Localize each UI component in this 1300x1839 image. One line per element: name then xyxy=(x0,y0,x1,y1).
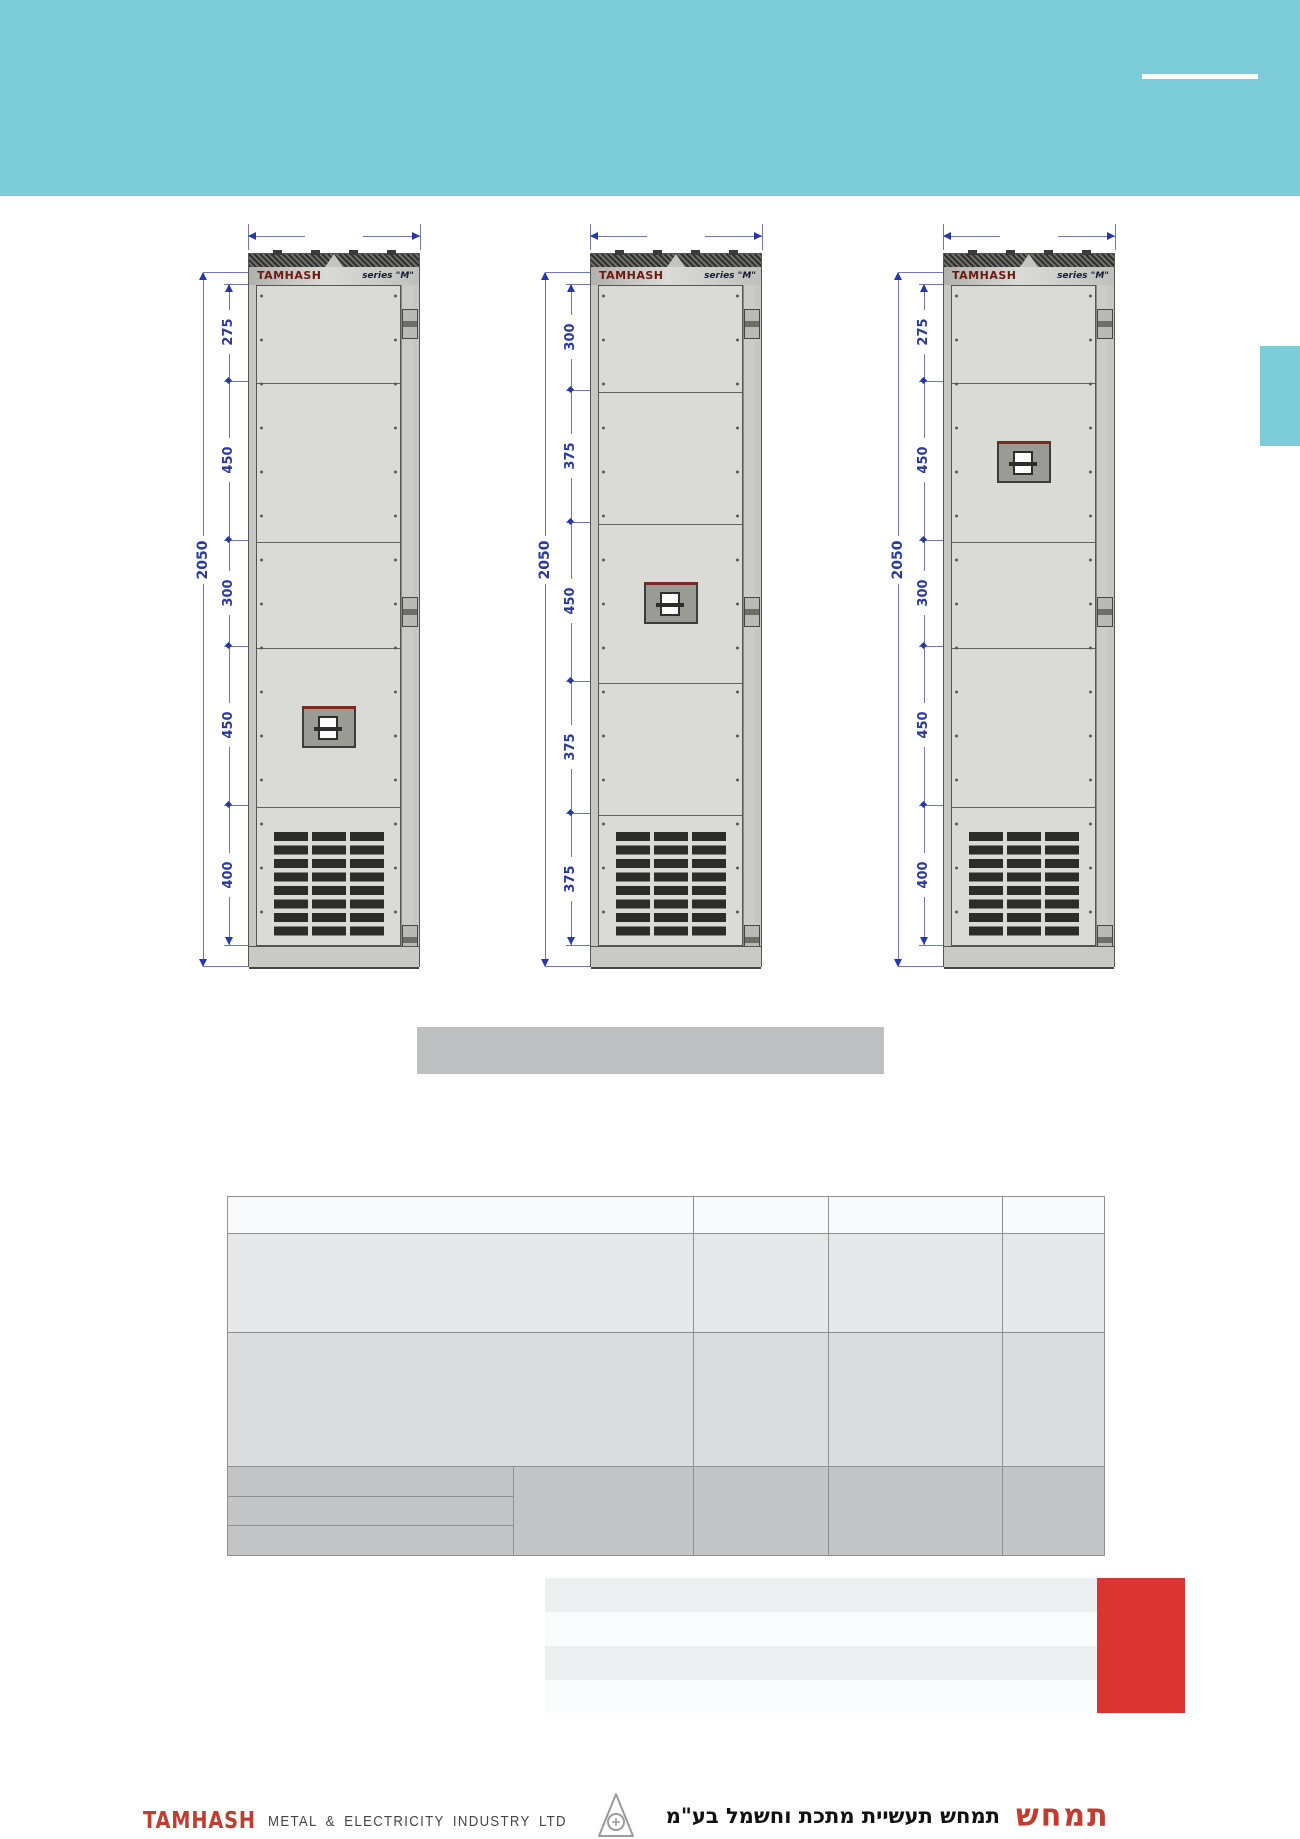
lifting-lug xyxy=(691,250,700,255)
dim-arrow xyxy=(943,232,951,240)
lifting-lug xyxy=(615,250,624,255)
stripe-row xyxy=(545,1646,1097,1680)
dim-arrow xyxy=(590,232,598,240)
dim-arrow xyxy=(567,284,575,292)
cabinet-body xyxy=(591,285,761,946)
dim-overall-line xyxy=(545,272,546,967)
catalog-page: 2050 275 450 300 450 400 TAMHASH series … xyxy=(0,0,1300,1839)
red-accent-block xyxy=(1097,1578,1185,1713)
dim-tick xyxy=(203,272,248,273)
panel-seam xyxy=(257,807,400,808)
header-band xyxy=(0,0,1300,196)
panel-seam xyxy=(952,648,1095,649)
dim-ext-line xyxy=(762,224,763,250)
dim-arrow xyxy=(225,536,232,543)
dim-overall-label: 2050 xyxy=(890,536,906,584)
panel-seam xyxy=(952,542,1095,543)
cabinet-vent-grille xyxy=(616,832,726,940)
table-row xyxy=(227,1233,1105,1332)
dim-arrow xyxy=(412,232,420,240)
page-edge-tab xyxy=(1260,346,1300,446)
company-name-hebrew: תמחש תעשיית מתכת וחשמל בע"מ xyxy=(650,1804,1000,1828)
lifting-lug xyxy=(1044,250,1053,255)
table-subline xyxy=(227,1525,513,1526)
dim-section-label: 400 xyxy=(221,853,237,897)
roof-peak xyxy=(667,254,685,267)
cabinet-vent-grille xyxy=(274,832,384,940)
table-line xyxy=(227,1466,1105,1467)
cabinet-body xyxy=(944,285,1114,946)
roof-peak xyxy=(1020,254,1038,267)
door-hinge xyxy=(744,309,760,339)
dim-section-label: 450 xyxy=(916,703,932,747)
cabinet-3: TAMHASH series "M" xyxy=(943,253,1115,967)
dim-arrow xyxy=(248,232,256,240)
stripe-row xyxy=(545,1680,1097,1713)
dim-ext-line xyxy=(1115,224,1116,250)
dim-arrow xyxy=(567,386,574,393)
dim-arrow xyxy=(541,272,549,280)
screw-column xyxy=(955,294,958,937)
cabinet-name-band: TAMHASH series "M" xyxy=(249,267,419,286)
dim-section-label: 400 xyxy=(916,853,932,897)
cabinet-door xyxy=(951,285,1096,946)
cabinet-vent-grille xyxy=(969,832,1079,940)
table-row xyxy=(227,1332,1105,1466)
dim-overall-label: 2050 xyxy=(195,536,211,584)
cabinet-2: TAMHASH series "M" xyxy=(590,253,762,967)
dim-section-label: 300 xyxy=(916,571,932,615)
handle-slot xyxy=(1013,451,1033,475)
cabinet-series-label: series "M" xyxy=(362,271,414,281)
table-line xyxy=(828,1196,829,1556)
cabinet-body xyxy=(249,285,419,946)
door-hinge xyxy=(402,309,418,339)
panel-seam xyxy=(952,383,1095,384)
dim-arrow xyxy=(920,284,928,292)
screw-column xyxy=(260,294,263,937)
screw-column xyxy=(394,294,397,937)
lifting-lug xyxy=(653,250,662,255)
cabinet-door xyxy=(598,285,743,946)
lifting-lug xyxy=(273,250,282,255)
dim-section-label: 450 xyxy=(563,579,579,623)
lifting-lug xyxy=(387,250,396,255)
table-line xyxy=(1104,1196,1105,1556)
cabinet-brand-label: TAMHASH xyxy=(952,269,1016,282)
header-accent-line xyxy=(1142,74,1258,79)
table-line xyxy=(693,1196,694,1556)
dim-arrow xyxy=(567,809,574,816)
dim-overall-line xyxy=(203,272,204,967)
dim-arrow xyxy=(1107,232,1115,240)
handle-slot xyxy=(660,592,680,616)
table-subline xyxy=(227,1496,513,1497)
screw-column xyxy=(736,294,739,937)
dim-width-line xyxy=(248,236,305,237)
table-header-row xyxy=(227,1196,1105,1233)
dim-tick xyxy=(545,272,590,273)
panel-seam xyxy=(599,815,742,816)
table-line xyxy=(227,1196,228,1556)
dim-section-label: 375 xyxy=(563,857,579,901)
panel-seam xyxy=(257,542,400,543)
dim-ext-line xyxy=(420,224,421,250)
door-hinge xyxy=(402,597,418,627)
dim-arrow xyxy=(894,272,902,280)
cabinet-series-label: series "M" xyxy=(1057,271,1109,281)
dim-section-label: 450 xyxy=(916,438,932,482)
dim-arrow xyxy=(920,377,927,384)
panel-seam xyxy=(599,683,742,684)
dim-section-label: 375 xyxy=(563,725,579,769)
dim-arrow xyxy=(225,801,232,808)
panel-seam xyxy=(257,648,400,649)
cabinet-door xyxy=(256,285,401,946)
cabinet-plinth xyxy=(249,946,419,969)
cabinet-series-label: series "M" xyxy=(704,271,756,281)
table-line xyxy=(227,1555,1105,1556)
cabinet-handle xyxy=(997,441,1051,483)
stripe-row xyxy=(545,1612,1097,1646)
cabinet-handle xyxy=(644,582,698,624)
stripe-row xyxy=(545,1578,1097,1612)
cabinet-handle xyxy=(302,706,356,748)
cabinet-1: TAMHASH series "M" xyxy=(248,253,420,967)
title-bar xyxy=(417,1027,884,1074)
cabinet-plinth xyxy=(944,946,1114,969)
cabinet-brand-label: TAMHASH xyxy=(599,269,663,282)
table-line xyxy=(227,1332,1105,1333)
table-line xyxy=(227,1196,1105,1197)
lifting-lug xyxy=(729,250,738,255)
dim-section-label: 275 xyxy=(916,310,932,354)
dim-arrow xyxy=(754,232,762,240)
dim-overall-line xyxy=(898,272,899,967)
dim-arrow xyxy=(920,536,927,543)
panel-seam xyxy=(599,524,742,525)
dim-section-label: 275 xyxy=(221,310,237,354)
dim-arrow xyxy=(567,518,574,525)
table-row xyxy=(227,1466,1105,1555)
screw-column xyxy=(602,294,605,937)
lifting-lug xyxy=(1006,250,1015,255)
cabinet-brand-label: TAMHASH xyxy=(257,269,321,282)
cabinet-name-band: TAMHASH series "M" xyxy=(944,267,1114,286)
dim-tick xyxy=(203,966,248,967)
cabinet-plinth xyxy=(591,946,761,969)
dim-section-label: 300 xyxy=(563,315,579,359)
dim-width-line xyxy=(590,236,647,237)
panel-seam xyxy=(257,383,400,384)
dim-width-line xyxy=(943,236,1000,237)
cabinet-name-band: TAMHASH series "M" xyxy=(591,267,761,286)
dim-section-label: 375 xyxy=(563,434,579,478)
dim-section-label: 450 xyxy=(221,438,237,482)
table-line xyxy=(1002,1196,1003,1556)
dim-arrow xyxy=(567,677,574,684)
dim-section-label: 300 xyxy=(221,571,237,615)
dim-arrow xyxy=(567,937,575,945)
dim-tick xyxy=(898,966,943,967)
lifting-lug xyxy=(968,250,977,255)
dim-arrow xyxy=(225,937,233,945)
panel-seam xyxy=(599,392,742,393)
door-hinge xyxy=(744,597,760,627)
screw-column xyxy=(1089,294,1092,937)
dim-arrow xyxy=(225,377,232,384)
lifting-lug xyxy=(349,250,358,255)
dim-arrow xyxy=(920,801,927,808)
table-line xyxy=(227,1233,1105,1234)
door-hinge xyxy=(1097,309,1113,339)
dim-arrow xyxy=(199,272,207,280)
dim-overall-label: 2050 xyxy=(537,536,553,584)
dim-arrow xyxy=(225,284,233,292)
door-hinge xyxy=(1097,597,1113,627)
handle-slot xyxy=(318,716,338,740)
tamhash-hebrew-logo: תמחש xyxy=(1016,1797,1110,1834)
dim-arrow xyxy=(225,642,232,649)
tamhash-logo: TAMHASH xyxy=(143,1808,256,1834)
dim-tick xyxy=(545,966,590,967)
panel-seam xyxy=(952,807,1095,808)
lifting-lug xyxy=(311,250,320,255)
dim-arrow xyxy=(920,937,928,945)
table-subline xyxy=(513,1466,514,1555)
dim-arrow xyxy=(920,642,927,649)
lifting-lug xyxy=(1082,250,1091,255)
roof-peak xyxy=(325,254,343,267)
standards-institute-logo xyxy=(598,1792,634,1838)
company-name-en: METAL & ELECTRICITY INDUSTRY LTD xyxy=(268,1813,567,1830)
dim-tick xyxy=(898,272,943,273)
dim-section-label: 450 xyxy=(221,703,237,747)
